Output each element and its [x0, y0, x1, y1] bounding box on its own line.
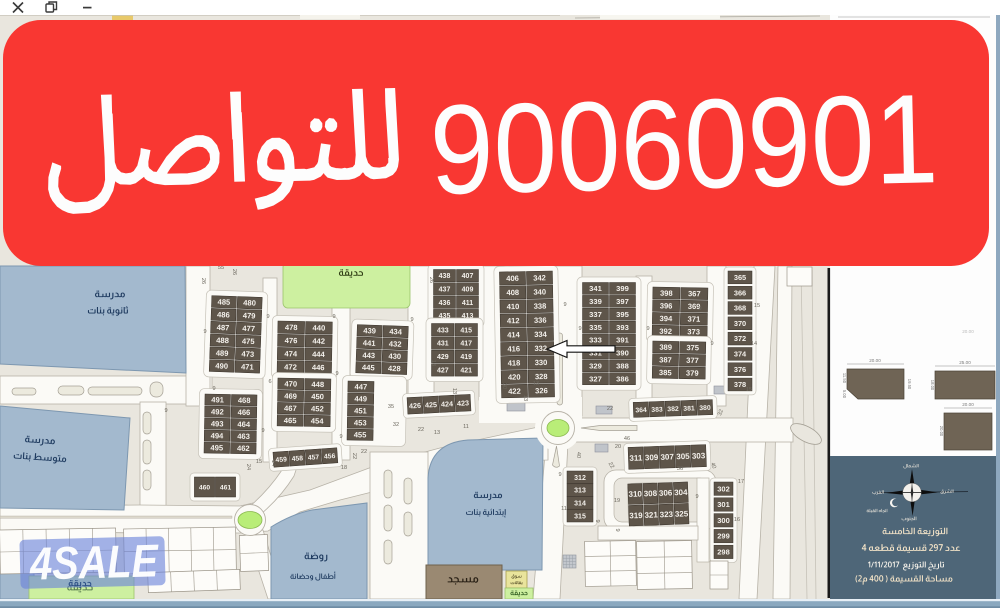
svg-text:409: 409 [462, 287, 474, 294]
svg-text:464: 464 [237, 420, 251, 429]
svg-text:446: 446 [312, 363, 325, 372]
svg-text:460: 460 [199, 485, 211, 492]
svg-text:459: 459 [275, 456, 287, 464]
svg-text:9: 9 [203, 329, 206, 335]
svg-text:467: 467 [284, 404, 297, 413]
svg-text:341: 341 [589, 284, 602, 293]
svg-text:310: 310 [628, 489, 642, 498]
svg-text:9: 9 [695, 494, 698, 500]
svg-text:16: 16 [734, 517, 740, 523]
svg-text:35: 35 [388, 404, 394, 410]
svg-text:480: 480 [243, 298, 256, 307]
svg-text:421: 421 [460, 368, 472, 375]
svg-text:6: 6 [268, 379, 271, 385]
svg-text:9: 9 [261, 428, 264, 434]
svg-text:337: 337 [589, 310, 602, 319]
svg-text:397: 397 [616, 297, 629, 306]
svg-text:13: 13 [451, 388, 457, 394]
svg-text:426: 426 [409, 401, 421, 411]
svg-text:445: 445 [362, 363, 376, 372]
svg-text:453: 453 [354, 418, 367, 427]
svg-text:300: 300 [717, 516, 730, 525]
svg-text:9: 9 [410, 317, 413, 323]
svg-text:393: 393 [616, 323, 629, 332]
svg-text:308: 308 [644, 489, 658, 498]
svg-text:474: 474 [284, 349, 298, 358]
svg-text:9: 9 [266, 314, 269, 320]
svg-text:26: 26 [231, 269, 237, 275]
svg-text:434: 434 [389, 327, 403, 336]
svg-text:455: 455 [354, 430, 368, 439]
svg-text:436: 436 [439, 300, 451, 307]
svg-text:420: 420 [508, 373, 521, 382]
svg-text:418: 418 [508, 358, 521, 367]
svg-text:303: 303 [692, 451, 706, 460]
svg-text:332: 332 [534, 344, 547, 353]
svg-text:415: 415 [460, 327, 472, 334]
svg-text:13: 13 [522, 395, 528, 401]
svg-text:13: 13 [533, 381, 539, 387]
svg-text:407: 407 [462, 273, 474, 280]
svg-text:414: 414 [507, 330, 521, 339]
svg-text:429: 429 [437, 354, 449, 361]
svg-text:492: 492 [211, 407, 224, 416]
svg-text:335: 335 [589, 323, 602, 332]
svg-text:378: 378 [734, 380, 746, 389]
svg-text:454: 454 [311, 416, 325, 425]
svg-text:408: 408 [506, 288, 519, 297]
svg-text:389: 389 [659, 343, 672, 352]
svg-text:377: 377 [686, 356, 699, 365]
svg-text:9: 9 [710, 341, 713, 347]
svg-text:15: 15 [754, 303, 760, 309]
svg-text:14: 14 [751, 341, 757, 347]
svg-text:26: 26 [428, 277, 434, 283]
svg-text:478: 478 [285, 323, 298, 332]
svg-text:461: 461 [220, 485, 232, 492]
svg-text:423: 423 [457, 398, 469, 408]
svg-text:406: 406 [506, 274, 519, 283]
svg-text:342: 342 [533, 273, 546, 282]
svg-text:449: 449 [354, 394, 367, 403]
svg-text:9: 9 [335, 371, 338, 377]
svg-text:20.00: 20.00 [869, 358, 881, 363]
svg-text:440: 440 [313, 323, 326, 332]
svg-text:382: 382 [667, 406, 679, 413]
svg-text:19: 19 [614, 498, 620, 504]
svg-text:371: 371 [687, 315, 701, 324]
svg-text:328: 328 [535, 372, 548, 381]
svg-text:447: 447 [355, 382, 368, 391]
svg-text:387: 387 [659, 355, 672, 364]
svg-text:385: 385 [659, 368, 673, 377]
svg-text:32: 32 [393, 422, 399, 428]
svg-text:14: 14 [270, 460, 276, 466]
svg-text:419: 419 [460, 354, 472, 361]
svg-text:333: 333 [589, 336, 602, 345]
svg-text:364: 364 [635, 407, 647, 414]
svg-text:319: 319 [629, 511, 643, 520]
svg-text:476: 476 [285, 336, 298, 345]
svg-text:438: 438 [439, 273, 451, 280]
svg-text:36: 36 [677, 466, 683, 472]
svg-text:311: 311 [629, 453, 643, 462]
svg-text:315: 315 [574, 513, 586, 520]
svg-text:376: 376 [734, 365, 746, 374]
svg-text:9: 9 [563, 302, 566, 308]
svg-text:473: 473 [241, 349, 254, 358]
svg-text:9: 9 [339, 434, 342, 440]
svg-text:323: 323 [660, 510, 674, 519]
svg-text:13: 13 [430, 360, 436, 366]
svg-text:22: 22 [607, 406, 613, 412]
svg-text:466: 466 [238, 408, 251, 417]
svg-text:463: 463 [237, 432, 250, 441]
svg-text:9: 9 [558, 472, 561, 478]
svg-text:424: 424 [441, 399, 453, 409]
svg-text:477: 477 [242, 324, 255, 333]
svg-text:395: 395 [616, 310, 629, 319]
svg-text:462: 462 [237, 444, 250, 453]
svg-text:17: 17 [738, 479, 744, 485]
svg-text:339: 339 [589, 297, 602, 306]
svg-text:495: 495 [210, 443, 224, 452]
svg-text:475: 475 [242, 337, 256, 346]
svg-text:412: 412 [507, 316, 520, 325]
svg-text:366: 366 [734, 288, 746, 297]
svg-text:20.00: 20.00 [962, 329, 974, 334]
svg-text:431: 431 [437, 341, 449, 348]
svg-text:448: 448 [311, 380, 324, 389]
svg-text:485: 485 [217, 297, 231, 306]
svg-text:422: 422 [508, 387, 521, 396]
svg-text:9: 9 [578, 326, 581, 332]
svg-text:489: 489 [216, 349, 229, 358]
svg-text:451: 451 [354, 406, 368, 415]
svg-text:386: 386 [616, 374, 629, 383]
svg-text:9: 9 [698, 306, 701, 312]
svg-text:20.00: 20.00 [939, 426, 944, 437]
svg-text:490: 490 [215, 361, 228, 370]
svg-text:432: 432 [389, 339, 402, 348]
svg-text:439: 439 [363, 326, 376, 335]
svg-text:9: 9 [332, 314, 335, 320]
svg-text:365: 365 [734, 273, 746, 282]
svg-text:9: 9 [164, 408, 167, 414]
svg-text:372: 372 [734, 334, 746, 343]
svg-text:444: 444 [312, 350, 326, 359]
svg-text:9: 9 [614, 528, 620, 531]
svg-text:411: 411 [462, 300, 473, 307]
svg-text:309: 309 [645, 453, 659, 462]
svg-text:24: 24 [245, 464, 251, 470]
svg-text:327: 327 [589, 374, 602, 383]
svg-text:441: 441 [363, 338, 377, 347]
svg-text:22: 22 [361, 449, 367, 455]
svg-text:486: 486 [217, 310, 230, 319]
svg-text:470: 470 [284, 379, 297, 388]
svg-text:494: 494 [211, 431, 225, 440]
svg-text:15: 15 [256, 459, 262, 465]
svg-text:381: 381 [683, 405, 695, 412]
svg-text:336: 336 [534, 316, 547, 325]
svg-text:4SALE: 4SALE [28, 534, 159, 589]
svg-text:427: 427 [437, 368, 449, 375]
svg-text:388: 388 [616, 361, 629, 370]
svg-text:301: 301 [717, 500, 730, 509]
svg-text:410: 410 [507, 302, 520, 311]
svg-text:325: 325 [675, 509, 689, 518]
svg-text:488: 488 [216, 336, 229, 345]
svg-text:40: 40 [575, 452, 581, 458]
svg-text:330: 330 [535, 358, 548, 367]
svg-text:416: 416 [507, 344, 520, 353]
svg-text:299: 299 [717, 532, 730, 541]
svg-text:443: 443 [362, 351, 375, 360]
svg-text:298: 298 [717, 548, 730, 557]
svg-text:326: 326 [535, 386, 548, 395]
svg-text:398: 398 [660, 289, 673, 298]
svg-text:306: 306 [659, 488, 673, 497]
svg-text:20: 20 [615, 444, 621, 450]
svg-text:428: 428 [388, 364, 401, 373]
svg-text:375: 375 [686, 343, 700, 352]
svg-text:469: 469 [284, 392, 297, 401]
svg-text:433: 433 [437, 327, 449, 334]
svg-text:391: 391 [616, 336, 629, 345]
svg-text:370: 370 [734, 319, 746, 328]
svg-text:11: 11 [561, 506, 567, 512]
svg-text:302: 302 [717, 484, 730, 493]
svg-text:450: 450 [311, 392, 324, 401]
svg-text:338: 338 [534, 302, 547, 311]
svg-text:5.00: 5.00 [842, 390, 847, 399]
svg-text:373: 373 [687, 327, 700, 336]
svg-text:11.50: 11.50 [842, 373, 847, 384]
svg-text:314: 314 [574, 501, 586, 508]
svg-text:18: 18 [341, 465, 347, 471]
svg-text:90060901: 90060901 [428, 67, 939, 220]
svg-text:11: 11 [463, 424, 469, 430]
svg-text:15: 15 [746, 387, 752, 393]
svg-text:452: 452 [311, 404, 324, 413]
svg-text:399: 399 [616, 284, 629, 293]
svg-text:9: 9 [594, 519, 600, 522]
svg-text:367: 367 [688, 289, 701, 298]
svg-text:329: 329 [589, 361, 602, 370]
svg-text:13: 13 [434, 430, 440, 436]
svg-text:472: 472 [284, 362, 297, 371]
svg-text:458: 458 [291, 455, 303, 463]
svg-text:9: 9 [212, 386, 215, 392]
svg-text:26: 26 [200, 278, 206, 284]
svg-text:321: 321 [644, 510, 658, 519]
svg-text:457: 457 [308, 454, 320, 462]
svg-text:46: 46 [624, 436, 630, 442]
svg-text:313: 313 [574, 488, 586, 495]
svg-text:493: 493 [211, 419, 224, 428]
svg-text:22: 22 [351, 453, 357, 459]
svg-text:465: 465 [284, 416, 298, 425]
svg-text:471: 471 [241, 362, 255, 371]
svg-text:379: 379 [686, 369, 699, 378]
svg-text:304: 304 [674, 488, 688, 497]
svg-text:9: 9 [646, 326, 649, 332]
svg-text:19.50: 19.50 [907, 379, 912, 390]
svg-text:390: 390 [616, 349, 629, 358]
svg-text:18.00: 18.00 [930, 380, 935, 391]
svg-text:394: 394 [659, 314, 673, 323]
svg-text:340: 340 [533, 287, 546, 296]
svg-text:430: 430 [388, 352, 401, 361]
svg-text:425: 425 [425, 400, 437, 410]
svg-text:25.00: 25.00 [959, 360, 971, 365]
svg-text:368: 368 [734, 304, 746, 313]
svg-text:487: 487 [217, 323, 230, 332]
svg-text:456: 456 [324, 453, 336, 461]
svg-text:20.00: 20.00 [962, 402, 974, 407]
svg-text:479: 479 [243, 311, 256, 320]
svg-text:374: 374 [734, 350, 747, 359]
svg-text:491: 491 [211, 395, 225, 404]
svg-text:468: 468 [238, 396, 251, 405]
svg-text:312: 312 [574, 475, 586, 482]
svg-text:442: 442 [312, 337, 325, 346]
svg-text:307: 307 [660, 452, 674, 461]
svg-text:383: 383 [651, 406, 663, 413]
svg-text:334: 334 [534, 330, 548, 339]
svg-text:305: 305 [676, 452, 690, 461]
svg-text:437: 437 [439, 287, 451, 294]
svg-text:380: 380 [699, 405, 711, 412]
svg-text:30: 30 [501, 383, 507, 389]
svg-text:392: 392 [659, 327, 672, 336]
svg-text:22: 22 [418, 427, 424, 433]
svg-text:396: 396 [660, 301, 673, 310]
svg-text:417: 417 [460, 341, 472, 348]
